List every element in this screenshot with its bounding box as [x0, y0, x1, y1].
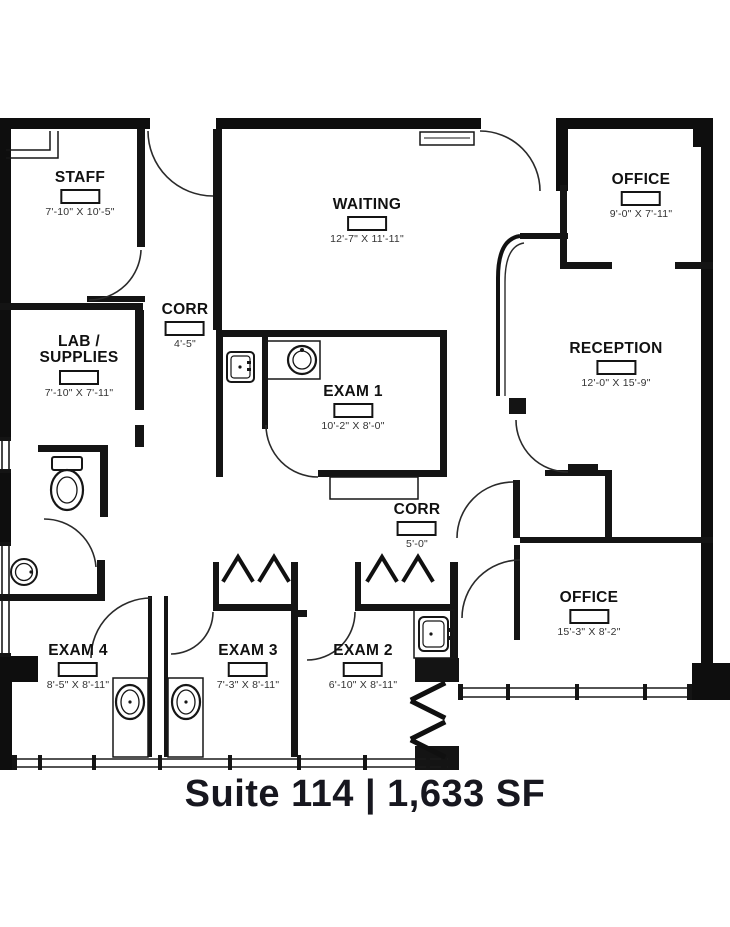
corner-detail-lines	[6, 131, 58, 158]
room-label-office-upper: OFFICE 9'-0" X 7'-11"	[610, 172, 673, 221]
room-name: EXAM 2	[329, 643, 398, 659]
room-name: OFFICE	[557, 590, 620, 606]
floor-plan-page: STAFF 7'-10" X 10'-5" CORR 4'-5" LAB / S…	[0, 0, 730, 927]
room-tag-box	[58, 662, 98, 677]
plan-title: Suite 114 | 1,633 SF	[185, 773, 546, 816]
room-name: EXAM 3	[217, 643, 280, 659]
exam2-sink-icon	[414, 610, 454, 658]
exam4-sink-icon	[113, 678, 148, 757]
room-name: EXAM 4	[47, 643, 110, 659]
room-name: RECEPTION	[569, 341, 662, 357]
room-tag-box	[228, 662, 268, 677]
room-tag-box	[343, 662, 383, 677]
room-tag-box	[59, 370, 99, 385]
room-dimensions: 8'-5" X 8'-11"	[47, 679, 110, 692]
room-label-corr-upper: CORR 4'-5"	[162, 302, 209, 351]
room-tag-box	[596, 360, 636, 375]
room-dimensions: 5'-0"	[394, 538, 441, 551]
waiting-counter	[330, 477, 418, 499]
room-name: CORR	[394, 502, 441, 518]
exam3-sink-icon	[168, 678, 203, 757]
room-name: OFFICE	[610, 172, 673, 188]
room-name: CORR	[162, 302, 209, 318]
room-dimensions: 7'-10" X 7'-11"	[23, 387, 135, 400]
room-dimensions: 7'-3" X 8'-11"	[217, 679, 280, 692]
room-dimensions: 12'-0" X 15'-9"	[569, 377, 662, 390]
room-label-exam-4: EXAM 4 8'-5" X 8'-11"	[47, 643, 110, 692]
room-tag-box	[60, 189, 100, 204]
corridor-sink-icon	[227, 352, 254, 382]
room-dimensions: 4'-5"	[162, 338, 209, 351]
room-tag-box	[397, 521, 437, 536]
room-dimensions: 15'-3" X 8'-2"	[557, 626, 620, 639]
room-label-office-lower: OFFICE 15'-3" X 8'-2"	[557, 590, 620, 639]
room-dimensions: 9'-0" X 7'-11"	[610, 208, 673, 221]
room-name: LAB / SUPPLIES	[23, 334, 135, 367]
room-label-corr-lower: CORR 5'-0"	[394, 502, 441, 551]
room-label-staff: STAFF 7'-10" X 10'-5"	[45, 170, 114, 219]
toilet-icon	[51, 457, 83, 510]
room-tag-box	[333, 403, 373, 418]
room-name: EXAM 1	[321, 384, 384, 400]
restroom-sink-icon	[11, 559, 37, 585]
room-dimensions: 6'-10" X 8'-11"	[329, 679, 398, 692]
room-label-lab-supplies: LAB / SUPPLIES 7'-10" X 7'-11"	[23, 334, 135, 399]
room-name: STAFF	[45, 170, 114, 186]
room-dimensions: 10'-2" X 8'-0"	[321, 420, 384, 433]
room-tag-box	[347, 216, 387, 231]
room-label-exam-2: EXAM 2 6'-10" X 8'-11"	[329, 643, 398, 692]
room-dimensions: 12'-7" X 11'-11"	[330, 233, 404, 246]
room-label-waiting: WAITING 12'-7" X 11'-11"	[330, 197, 404, 246]
angled-door-icons	[413, 684, 443, 756]
room-tag-box	[621, 191, 661, 206]
room-label-reception: RECEPTION 12'-0" X 15'-9"	[569, 341, 662, 390]
room-name: WAITING	[330, 197, 404, 213]
entry-sidelight-window	[420, 132, 474, 145]
exam1-counter-sink-icon	[266, 341, 320, 379]
room-tag-box	[569, 609, 609, 624]
room-label-exam-3: EXAM 3 7'-3" X 8'-11"	[217, 643, 280, 692]
room-label-exam-1: EXAM 1 10'-2" X 8'-0"	[321, 384, 384, 433]
reception-curved-wall	[498, 236, 524, 396]
room-tag-box	[165, 321, 205, 336]
room-dimensions: 7'-10" X 10'-5"	[45, 206, 114, 219]
